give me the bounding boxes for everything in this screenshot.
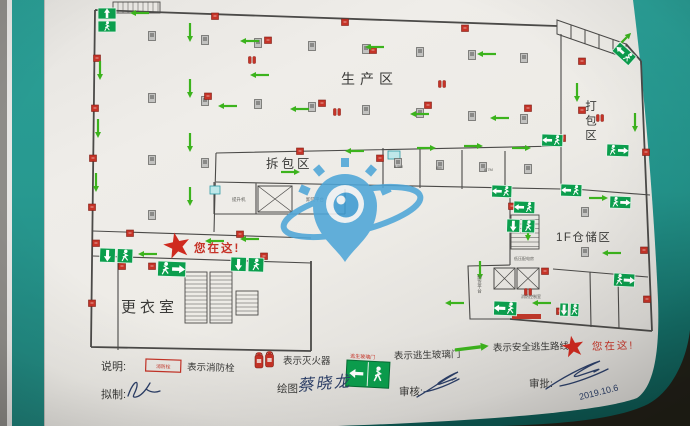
evacuation-plan-photo: 提升机卸货平台卸货平台低压配电房消防控制室8.5M8M8.7M 生产区 打包区 … [0, 0, 690, 426]
evacuation-plan-canvas: 提升机卸货平台卸货平台低压配电房消防控制室8.5M8M8.7M 生产区 打包区 … [0, 0, 690, 426]
photo-vignette [0, 0, 690, 426]
